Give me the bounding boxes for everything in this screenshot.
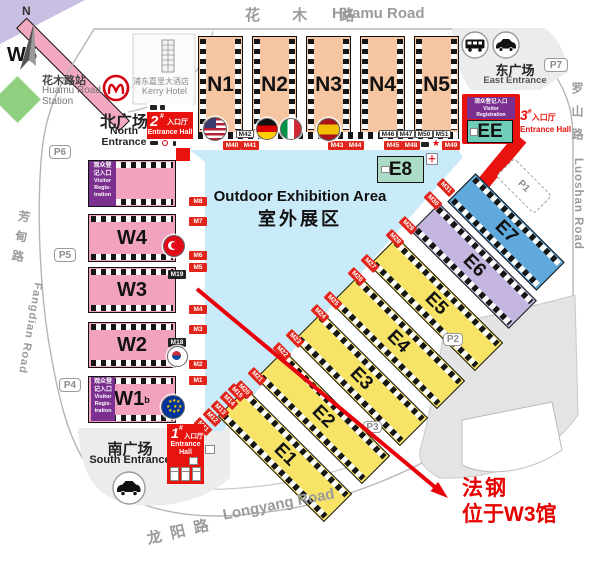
gate-label: M4	[189, 305, 207, 314]
truck-icon	[421, 142, 429, 147]
loading-dock-icon	[416, 39, 422, 130]
hall-w2: W2	[88, 322, 176, 368]
hall-w1-sup: b	[144, 395, 150, 405]
usa-flag-icon	[203, 117, 227, 141]
gate-label: M3	[189, 325, 207, 334]
parking-p5: P5	[54, 248, 76, 262]
parking-p7: P7	[544, 58, 568, 72]
loading-dock-icon	[254, 39, 260, 130]
gate-label: M51	[433, 130, 451, 138]
loading-dock-icon	[362, 39, 368, 130]
loading-dock-icon	[91, 216, 173, 222]
outdoor-area-cn: 室外展区	[205, 205, 395, 231]
taxi-icon	[150, 141, 158, 145]
hotel-name-en: Kerry Hotel	[142, 86, 187, 96]
loading-dock-icon	[200, 39, 206, 130]
gate-label: M43	[328, 141, 346, 150]
germany-flag-icon	[256, 118, 278, 140]
walk-icon	[173, 141, 176, 146]
loading-dock-icon	[308, 39, 314, 130]
mini-tile-icon	[381, 166, 390, 173]
road-top-en: Huamu Road	[332, 5, 425, 22]
entrance-hall-2-cn: 入口厅	[167, 117, 188, 127]
hall-w-label: W3	[117, 279, 147, 302]
parking-p2: P2	[443, 333, 463, 346]
south-korea-flag-icon	[167, 346, 188, 367]
car-circle-icon	[492, 31, 520, 59]
parking-p6: P6	[49, 145, 71, 159]
compass-label: N	[22, 4, 31, 18]
loading-dock-icon	[91, 360, 173, 366]
loading-dock-icon	[91, 269, 173, 275]
hall-w3: W3	[88, 267, 176, 313]
entrance-hall-2-number: 2	[150, 113, 158, 130]
mini-tile-icon	[470, 128, 478, 136]
entrance-hall-1-number: 1	[171, 425, 179, 441]
visitor-registration-cn: 观众登记入口	[467, 99, 515, 106]
hall-n-label: N5	[423, 73, 450, 97]
loading-dock-icon	[91, 305, 173, 311]
hotel-building-icon	[158, 38, 178, 74]
visitor-registration-east: 观众登记入口 Visitor Registration	[467, 97, 515, 119]
visitor-registration-line: 记入口	[89, 171, 116, 179]
gate-label: M19	[168, 270, 186, 279]
hall-e8: E8	[377, 156, 424, 183]
facility-strip	[147, 139, 193, 148]
visitor-registration-line: Visitor	[91, 394, 115, 401]
gate-label: M50	[415, 130, 433, 138]
gate-label: M46	[379, 130, 397, 138]
bus-circle-icon	[461, 31, 489, 59]
gate-label: M6	[189, 251, 207, 260]
metro-mini-icon	[162, 140, 168, 146]
entrance-hall-3-en: Entrance Hall	[520, 125, 571, 134]
visitor-registration-line: Visitor	[89, 178, 116, 185]
metro-logo-icon	[101, 73, 131, 103]
first-aid-cross: ＋	[427, 154, 436, 164]
visitor-registration-line: 观众登	[91, 379, 115, 387]
road-right-cn: 罗山路	[569, 82, 586, 151]
parking-p3: P3	[363, 421, 382, 433]
star-glyph: ★	[432, 138, 440, 148]
star-icon: ★	[432, 138, 440, 149]
gate-label: M48	[402, 141, 420, 150]
facility-tile-icon	[189, 457, 198, 465]
hall-ee: EE	[467, 120, 513, 143]
plaza-east-en: East Entrance	[480, 75, 550, 86]
gate-label: M44	[346, 141, 364, 150]
gate-label: M40	[223, 141, 241, 150]
annotation-line2: 位于W3馆	[462, 498, 557, 528]
hall-w-label: W2	[117, 334, 147, 357]
gate-label: M47	[397, 130, 415, 138]
outdoor-area-en: Outdoor Exhibition Area	[205, 188, 395, 205]
visitor-registration-line: 记入口	[91, 387, 115, 395]
facility-tile-icon	[181, 471, 190, 481]
loading-dock-icon	[397, 39, 403, 130]
entrance-hall-1-en2: Hall	[167, 449, 204, 456]
station-name-en2: Station	[42, 96, 73, 107]
visitor-registration-w5: 观众登记入口VisitorRegis-tration	[89, 161, 116, 206]
eu-flag-icon	[161, 395, 185, 419]
gate-label: M5	[189, 263, 207, 272]
bus-icon	[150, 105, 157, 110]
plaza-south-en: South Entrance	[85, 454, 175, 466]
facility-tile-icon	[170, 471, 179, 481]
visitor-registration-w1: 观众登记入口VisitorRegis-tration	[91, 377, 115, 421]
loading-dock-icon	[289, 39, 295, 130]
gate-label: M42	[236, 130, 254, 138]
hall-n-label: N1	[207, 73, 234, 97]
entrance-hall-1: 1 # 入口厅 Entrance Hall	[167, 424, 204, 484]
loading-dock-icon	[91, 324, 173, 330]
hall-n5: N5	[414, 36, 459, 133]
first-aid-icon: ＋	[426, 153, 438, 165]
expo-map: N 花 木 路 Huamu Road 罗山路 Luoshan Road 芳甸路 …	[0, 0, 600, 564]
entrance-hall-2-en: Entrance Hall	[147, 129, 193, 136]
entrance-hall-1-cn: 入口厅	[184, 430, 204, 440]
hall-ee-label: EE	[477, 121, 502, 143]
road-right-en: Luoshan Road	[572, 158, 584, 250]
hall-n-label: N2	[261, 73, 288, 97]
entrance-hall-3-number: 3	[520, 107, 528, 123]
facility-strip	[147, 103, 193, 112]
turkey-flag-icon	[163, 235, 185, 257]
italy-flag-icon	[280, 118, 302, 140]
loading-dock-icon	[451, 39, 457, 130]
loading-dock-icon	[91, 254, 173, 260]
facility-tile-icon	[205, 445, 215, 454]
hall-n-label: N4	[369, 73, 396, 97]
luggage-icon	[160, 105, 165, 110]
entrance-hall-3-cn: 入口厅	[532, 113, 556, 122]
entrance-hall-3: 3#入口厅 Entrance Hall	[520, 107, 571, 134]
entrance-hall-2: 2 # 入口厅 Entrance Hall	[147, 103, 193, 148]
compass-needle-icon	[12, 18, 42, 78]
visitor-registration-line: Regis-	[89, 185, 116, 192]
hall-n-label: N3	[315, 73, 342, 97]
hall-w-label: W4	[117, 227, 147, 250]
gate-label: M41	[241, 141, 259, 150]
hall-w-label: W1	[114, 388, 144, 411]
loading-dock-icon	[343, 39, 349, 130]
taxi-circle-icon	[111, 470, 147, 506]
gate-label: M1	[189, 376, 207, 385]
visitor-registration-line: tration	[89, 192, 116, 199]
entrance-hall-2-red: 2 # 入口厅 Entrance Hall	[147, 112, 193, 139]
hall-w4: W4	[88, 214, 176, 262]
parking-p4: P4	[59, 378, 81, 392]
visitor-registration-line: 观众登	[89, 163, 116, 171]
gate-label: M45	[384, 141, 402, 150]
loading-dock-icon	[235, 39, 241, 130]
facility-tile-icon	[192, 471, 201, 481]
hall-e8-label: E8	[389, 159, 412, 181]
entrance-hall-sup: #	[179, 425, 183, 432]
entrance-hall-sup: #	[160, 113, 164, 120]
hall-n4: N4	[360, 36, 405, 133]
visitor-registration-en2: Registration	[467, 112, 515, 118]
entrance-hall-1-en1: Entrance	[167, 441, 204, 448]
station-name-en1: Huamu Road	[42, 85, 101, 96]
visitor-registration-line: tration	[91, 408, 115, 415]
visitor-registration-line: Regis-	[91, 401, 115, 408]
spain-flag-icon	[317, 118, 340, 141]
gate-label: M2	[189, 360, 207, 369]
gate-label: M49	[442, 141, 460, 150]
